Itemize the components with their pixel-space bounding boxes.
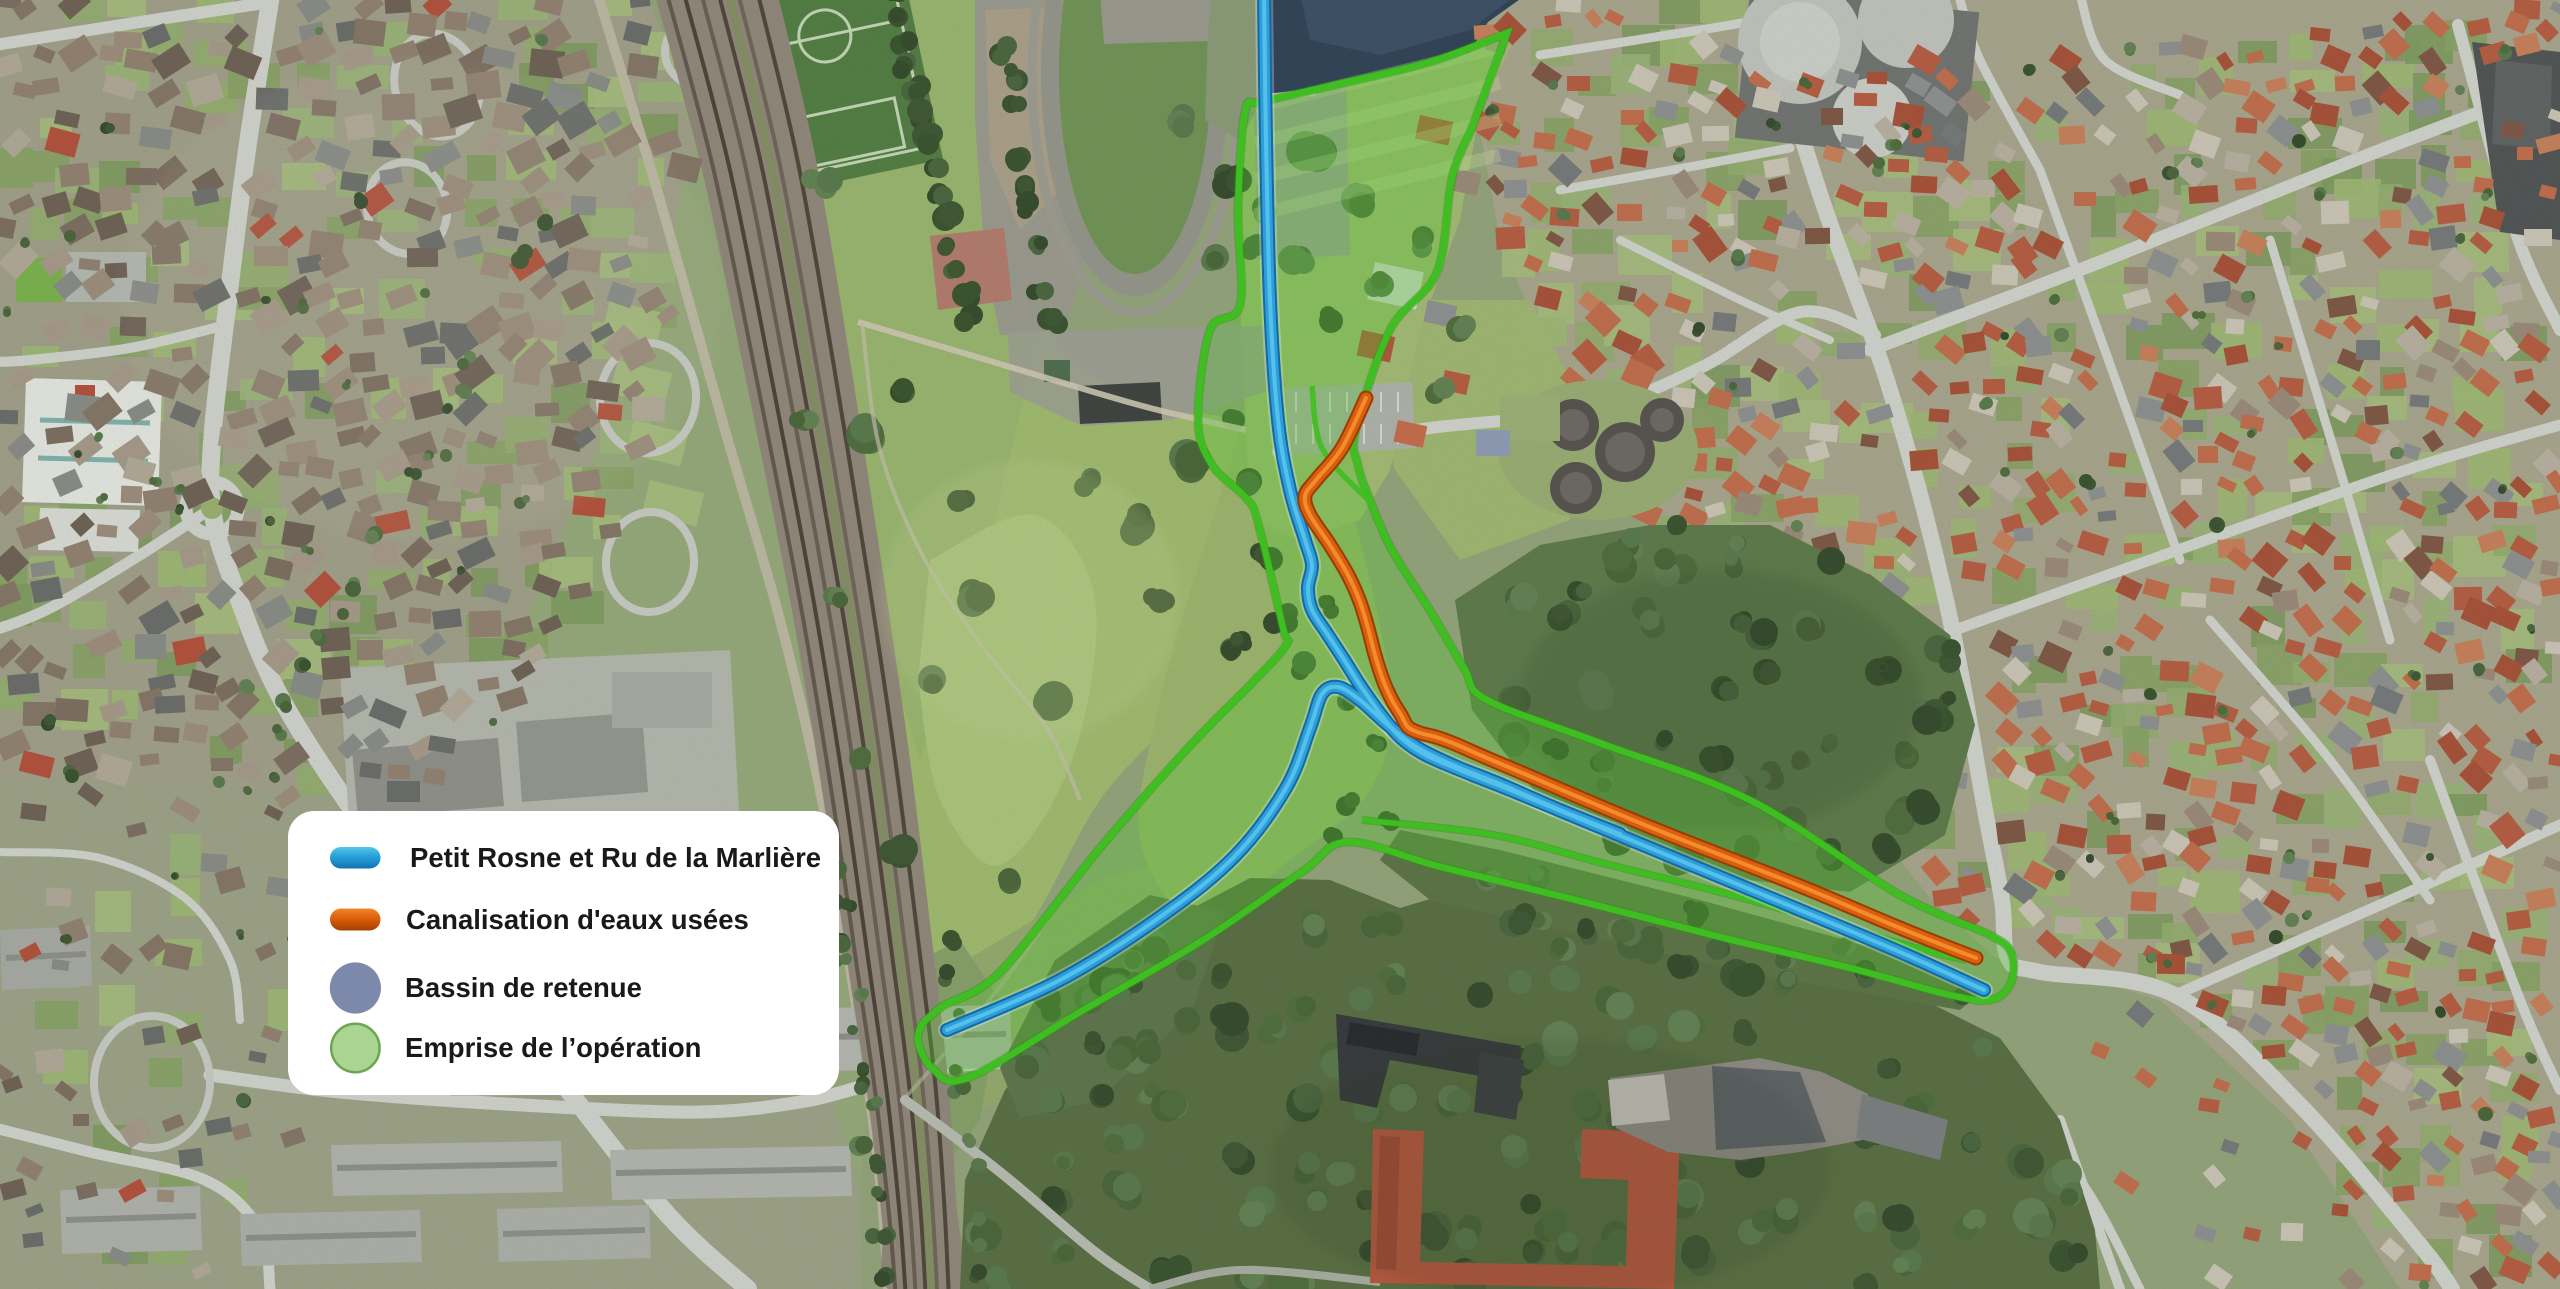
svg-text:Emprise de l’opération: Emprise de l’opération bbox=[405, 1032, 701, 1063]
svg-text:Petit Rosne et Ru de la Marliè: Petit Rosne et Ru de la Marlière bbox=[410, 842, 821, 873]
svg-text:Bassin de retenue: Bassin de retenue bbox=[405, 972, 642, 1003]
svg-text:Canalisation d'eaux usées: Canalisation d'eaux usées bbox=[406, 904, 749, 935]
